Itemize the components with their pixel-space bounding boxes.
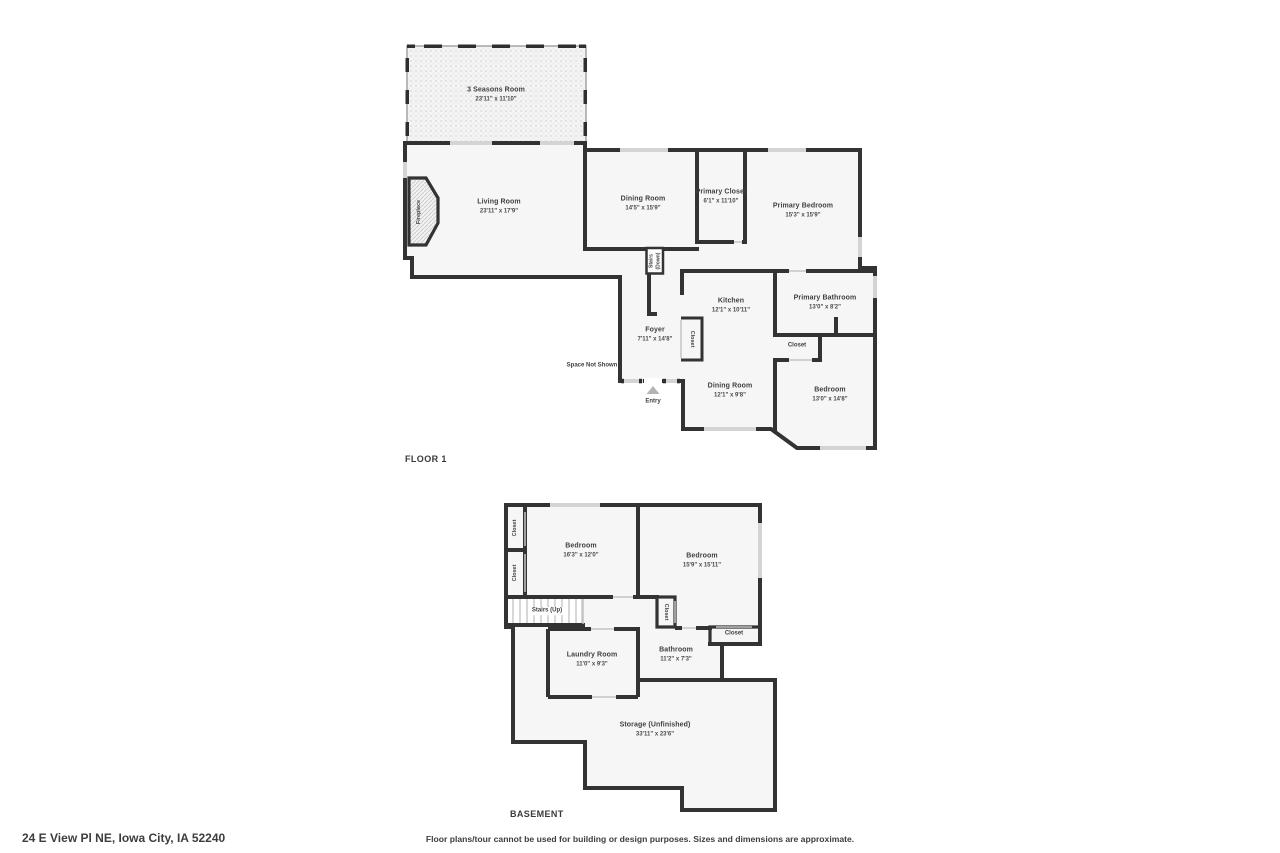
room-label-basement-bedroom-2: Bedroom 15'9" x 15'11" [683, 552, 721, 569]
room-dims: 12'1" x 9'8" [714, 392, 746, 400]
room-dims: 7'11" x 14'8" [638, 336, 673, 344]
room-label-dining-room-1: Dining Room 14'5" x 15'9" [621, 195, 666, 212]
room-name: Bathroom [659, 646, 693, 655]
entry-text: Entry [645, 398, 660, 406]
room-label-bathroom: Bathroom 11'2" x 7'3" [659, 646, 693, 663]
floor1-title: FLOOR 1 [405, 454, 447, 464]
room-dims: 11'0" x 9'3" [576, 661, 608, 669]
label-basement-closet-top: Closet [512, 520, 518, 537]
property-address: 24 E View Pl NE, Iowa City, IA 52240 [22, 831, 225, 845]
stairs-up-text: Stairs (Up) [530, 607, 564, 615]
room-name: Bedroom [565, 542, 596, 551]
disclaimer-text: Floor plans/tour cannot be used for buil… [426, 834, 854, 844]
room-name: 3 Seasons Room [467, 86, 525, 95]
room-dims: 11'2" x 7'3" [660, 656, 692, 664]
room-name: Primary Bathroom [794, 294, 857, 303]
room-dims: 6'1" x 11'10" [704, 198, 739, 206]
room-name: Bedroom [686, 552, 717, 561]
room-label-foyer: Foyer 7'11" x 14'8" [638, 326, 673, 343]
room-name: Bedroom [814, 386, 845, 395]
room-label-kitchen: Kitchen 12'1" x 10'11" [712, 297, 750, 314]
room-label-laundry-room: Laundry Room 11'0" x 9'3" [567, 651, 618, 668]
room-label-primary-bedroom: Primary Bedroom 15'3" x 15'9" [773, 202, 833, 219]
room-name: Primary Bedroom [773, 202, 833, 211]
room-label-storage: Storage (Unfinished) 33'11" x 23'6" [620, 721, 691, 738]
room-dims: 13'0" x 8'2" [809, 304, 841, 312]
room-dims: 13'0" x 14'8" [812, 396, 847, 404]
room-dims: 12'1" x 10'11" [712, 307, 750, 315]
floorplan-page: 3 Seasons Room 23'11" x 11'10" Living Ro… [0, 0, 1280, 853]
room-dims: 23'11" x 11'10" [475, 96, 516, 104]
room-name: Foyer [645, 326, 665, 335]
label-basement-hall-closet-horiz: Closet [725, 630, 743, 638]
room-label-primary-bathroom: Primary Bathroom 13'0" x 8'2" [794, 294, 857, 311]
room-label-primary-closet: Primary Closet 6'1" x 11'10" [696, 188, 747, 205]
label-basement-hall-closet-vert: Closet [663, 604, 669, 621]
space-not-shown-text: Space Not Shown [567, 362, 618, 370]
room-name: Closet [788, 342, 806, 350]
room-dims: 23'11" x 17'9" [480, 208, 518, 216]
label-stairs-up: Stairs (Up) [530, 607, 564, 615]
basement-plan [506, 505, 775, 810]
room-name: Dining Room [621, 195, 666, 204]
label-space-not-shown: Space Not Shown [567, 362, 618, 370]
room-dims: 15'3" x 15'9" [785, 212, 820, 220]
room-label-three-seasons: 3 Seasons Room 23'11" x 11'10" [467, 86, 525, 103]
room-name: Storage (Unfinished) [620, 721, 691, 730]
basement-title: BASEMENT [510, 809, 564, 819]
room-name: Dining Room [708, 382, 753, 391]
room-name: Living Room [477, 198, 521, 207]
label-foyer-closet: Closet [689, 331, 695, 348]
room-label-basement-bedroom-1: Bedroom 16'3" x 12'0" [563, 542, 598, 559]
label-entry: Entry [645, 398, 660, 406]
room-dims: 15'9" x 15'11" [683, 562, 721, 570]
room-name: Laundry Room [567, 651, 618, 660]
closet-text: Closet [725, 630, 743, 638]
room-name: Primary Closet [696, 188, 747, 197]
room-label-dining-room-2: Dining Room 12'1" x 9'8" [708, 382, 753, 399]
entry-triangle-icon [647, 386, 660, 394]
room-dims: 16'3" x 12'0" [563, 552, 598, 560]
label-stairs-down: Stairs (Down) [649, 248, 662, 274]
room-label-living-room: Living Room 23'11" x 17'9" [477, 198, 521, 215]
room-dims: 33'11" x 23'6" [636, 731, 674, 739]
room-dims: 14'5" x 15'9" [625, 205, 660, 213]
room-label-hall-closet: Closet [788, 342, 806, 350]
label-fireplace: Fireplace [416, 200, 422, 224]
room-label-bedroom-floor1: Bedroom 13'0" x 14'8" [812, 386, 847, 403]
room-name: Kitchen [718, 297, 744, 306]
floor1-plan [405, 45, 877, 449]
label-basement-closet-bottom: Closet [512, 565, 518, 582]
